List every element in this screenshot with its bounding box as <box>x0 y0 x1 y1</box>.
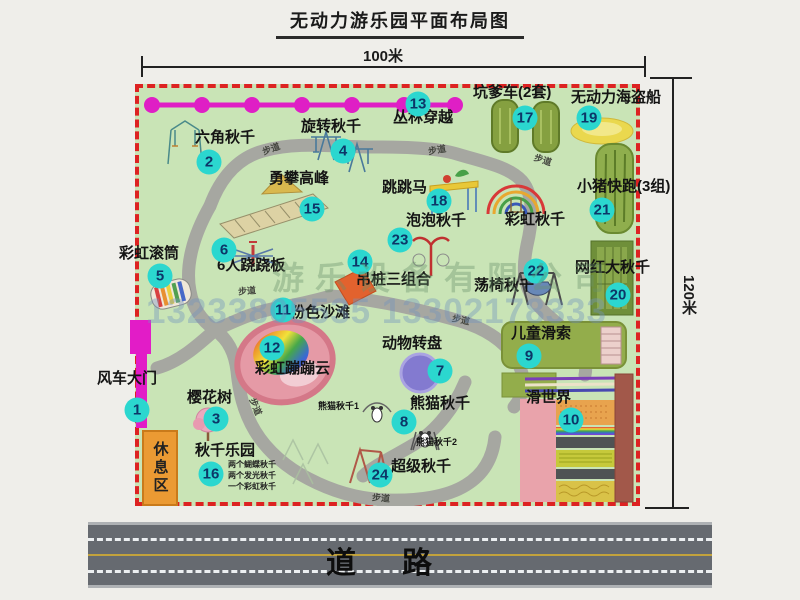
walkway-label: 步道 <box>371 490 390 505</box>
rest-area-label: 休息区 <box>150 441 171 495</box>
map-annotation-label: 熊猫秋千1 <box>318 401 359 411</box>
dimension-tick <box>650 77 692 79</box>
attraction-label: 樱花树 <box>187 390 232 406</box>
attraction-label: 小猪快跑(3组) <box>577 179 670 195</box>
dimension-height-label: 120米 <box>678 275 699 315</box>
dimension-tick <box>141 56 143 77</box>
dimension-tick <box>644 56 646 77</box>
attraction-label: 彩虹蹦蹦云 <box>255 361 330 377</box>
attraction-number-badge: 23 <box>388 228 413 253</box>
attraction-number-badge: 15 <box>300 197 325 222</box>
watermark-phone: 13233805535 13302178333 <box>146 292 607 332</box>
road: 道路 <box>88 522 712 588</box>
attraction-number-badge: 19 <box>577 106 602 131</box>
map-annotation-label: 彩虹秋千 <box>505 212 565 228</box>
attraction-label: 滑世界 <box>526 390 571 406</box>
attraction-label: 秋千乐园 <box>195 443 255 459</box>
attraction-number-badge: 16 <box>199 462 224 487</box>
attraction-number-badge: 10 <box>559 408 584 433</box>
dimension-tick <box>645 507 689 509</box>
attraction-number-badge: 13 <box>406 92 431 117</box>
dimension-height-line <box>672 78 674 508</box>
attraction-label: 超级秋千 <box>391 459 451 475</box>
park-layout-diagram: 无动力游乐园平面布局图 100米 120米 <box>0 0 800 600</box>
attraction-label: 无动力海盗船 <box>571 90 661 106</box>
attraction-number-badge: 3 <box>204 407 229 432</box>
dimension-width-line <box>142 66 645 68</box>
attraction-number-badge: 9 <box>517 344 542 369</box>
attraction-number-badge: 8 <box>392 410 417 435</box>
attraction-number-badge: 5 <box>148 264 173 289</box>
attraction-number-badge: 17 <box>513 106 538 131</box>
dimension-width-label: 100米 <box>363 45 403 66</box>
attraction-label: 旋转秋千 <box>301 119 361 135</box>
attraction-number-badge: 4 <box>331 139 356 164</box>
page-title: 无动力游乐园平面布局图 <box>276 7 524 39</box>
attraction-number-badge: 7 <box>428 359 453 384</box>
attraction-number-badge: 1 <box>125 398 150 423</box>
attraction-label: 彩虹滚筒 <box>119 246 179 262</box>
attraction-label: 勇攀高峰 <box>269 171 329 187</box>
attraction-label: 动物转盘 <box>382 336 442 352</box>
attraction-sublabels: 两个蝴蝶秋千两个发光秋千一个彩虹秋千 <box>228 459 276 492</box>
attraction-label: 坑爹车(2套) <box>473 85 551 101</box>
attraction-label: 跳跳马 <box>382 180 427 196</box>
attraction-number-badge: 12 <box>260 336 285 361</box>
rest-area: 休息区 <box>142 430 178 506</box>
map-annotation-label: 熊猫秋千2 <box>416 437 457 447</box>
road-label: 道路 <box>326 538 478 582</box>
attraction-number-badge: 21 <box>590 198 615 223</box>
attraction-label: 熊猫秋千 <box>410 396 470 412</box>
attraction-label: 风车大门 <box>97 371 157 387</box>
attraction-number-badge: 24 <box>368 463 393 488</box>
attraction-label: 六角秋千 <box>195 130 255 146</box>
attraction-number-badge: 2 <box>197 150 222 175</box>
attraction-number-badge: 18 <box>427 189 452 214</box>
attraction-number-badge: 6 <box>212 238 237 263</box>
attraction-label: 泡泡秋千 <box>406 213 466 229</box>
